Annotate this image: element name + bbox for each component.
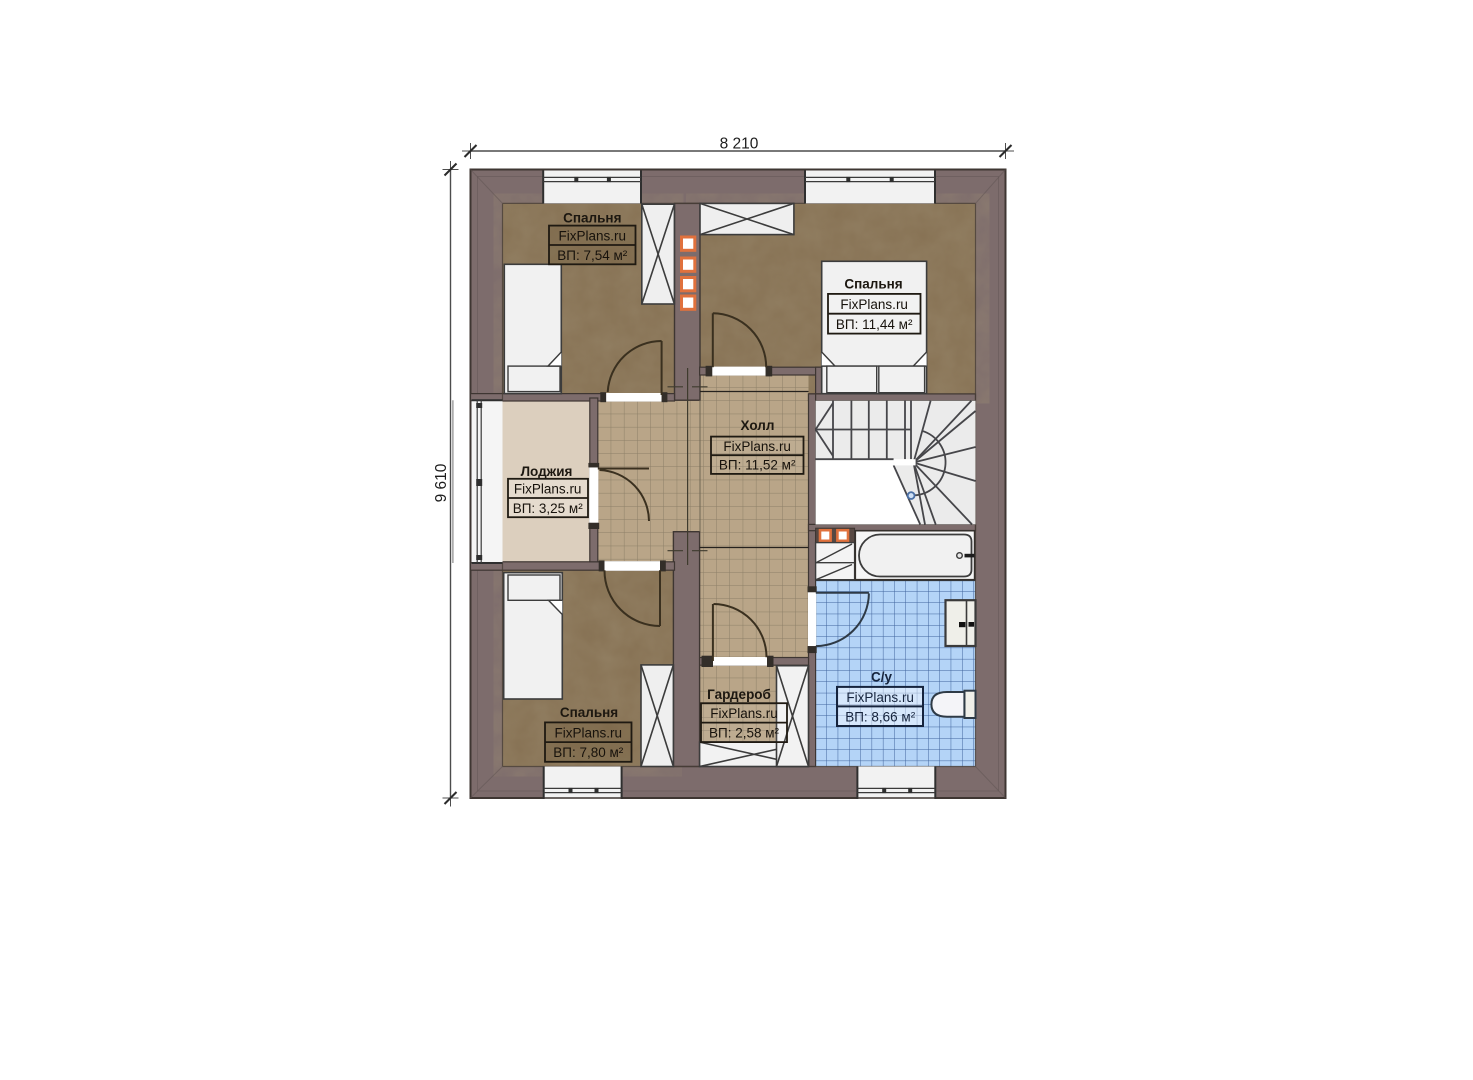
svg-text:FixPlans.ru: FixPlans.ru	[723, 439, 791, 454]
svg-text:Гардероб: Гардероб	[707, 687, 771, 702]
svg-text:FixPlans.ru: FixPlans.ru	[846, 690, 914, 705]
svg-text:Спальня: Спальня	[560, 705, 618, 720]
svg-text:С/у: С/у	[871, 670, 893, 685]
svg-text:ВП: 11,52 м²: ВП: 11,52 м²	[719, 458, 796, 473]
svg-text:ВП: 3,25 м²: ВП: 3,25 м²	[513, 501, 584, 516]
svg-text:Спальня: Спальня	[844, 277, 902, 292]
svg-text:FixPlans.ru: FixPlans.ru	[559, 229, 627, 244]
svg-text:FixPlans.ru: FixPlans.ru	[555, 725, 623, 740]
svg-text:Лоджия: Лоджия	[521, 464, 573, 479]
svg-text:ВП: 8,66 м²: ВП: 8,66 м²	[845, 709, 916, 724]
svg-text:ВП: 2,58 м²: ВП: 2,58 м²	[709, 726, 780, 741]
svg-text:Холл: Холл	[741, 418, 775, 433]
svg-text:ВП: 11,44 м²: ВП: 11,44 м²	[836, 317, 913, 332]
svg-text:9 610: 9 610	[433, 463, 450, 502]
svg-text:ВП: 7,80 м²: ВП: 7,80 м²	[553, 745, 624, 760]
svg-text:Спальня: Спальня	[563, 211, 621, 226]
svg-text:FixPlans.ru: FixPlans.ru	[514, 482, 582, 497]
svg-text:FixPlans.ru: FixPlans.ru	[710, 706, 778, 721]
svg-text:8 210: 8 210	[720, 136, 759, 153]
svg-text:ВП: 7,54 м²: ВП: 7,54 м²	[557, 248, 628, 263]
svg-text:FixPlans.ru: FixPlans.ru	[840, 297, 908, 312]
